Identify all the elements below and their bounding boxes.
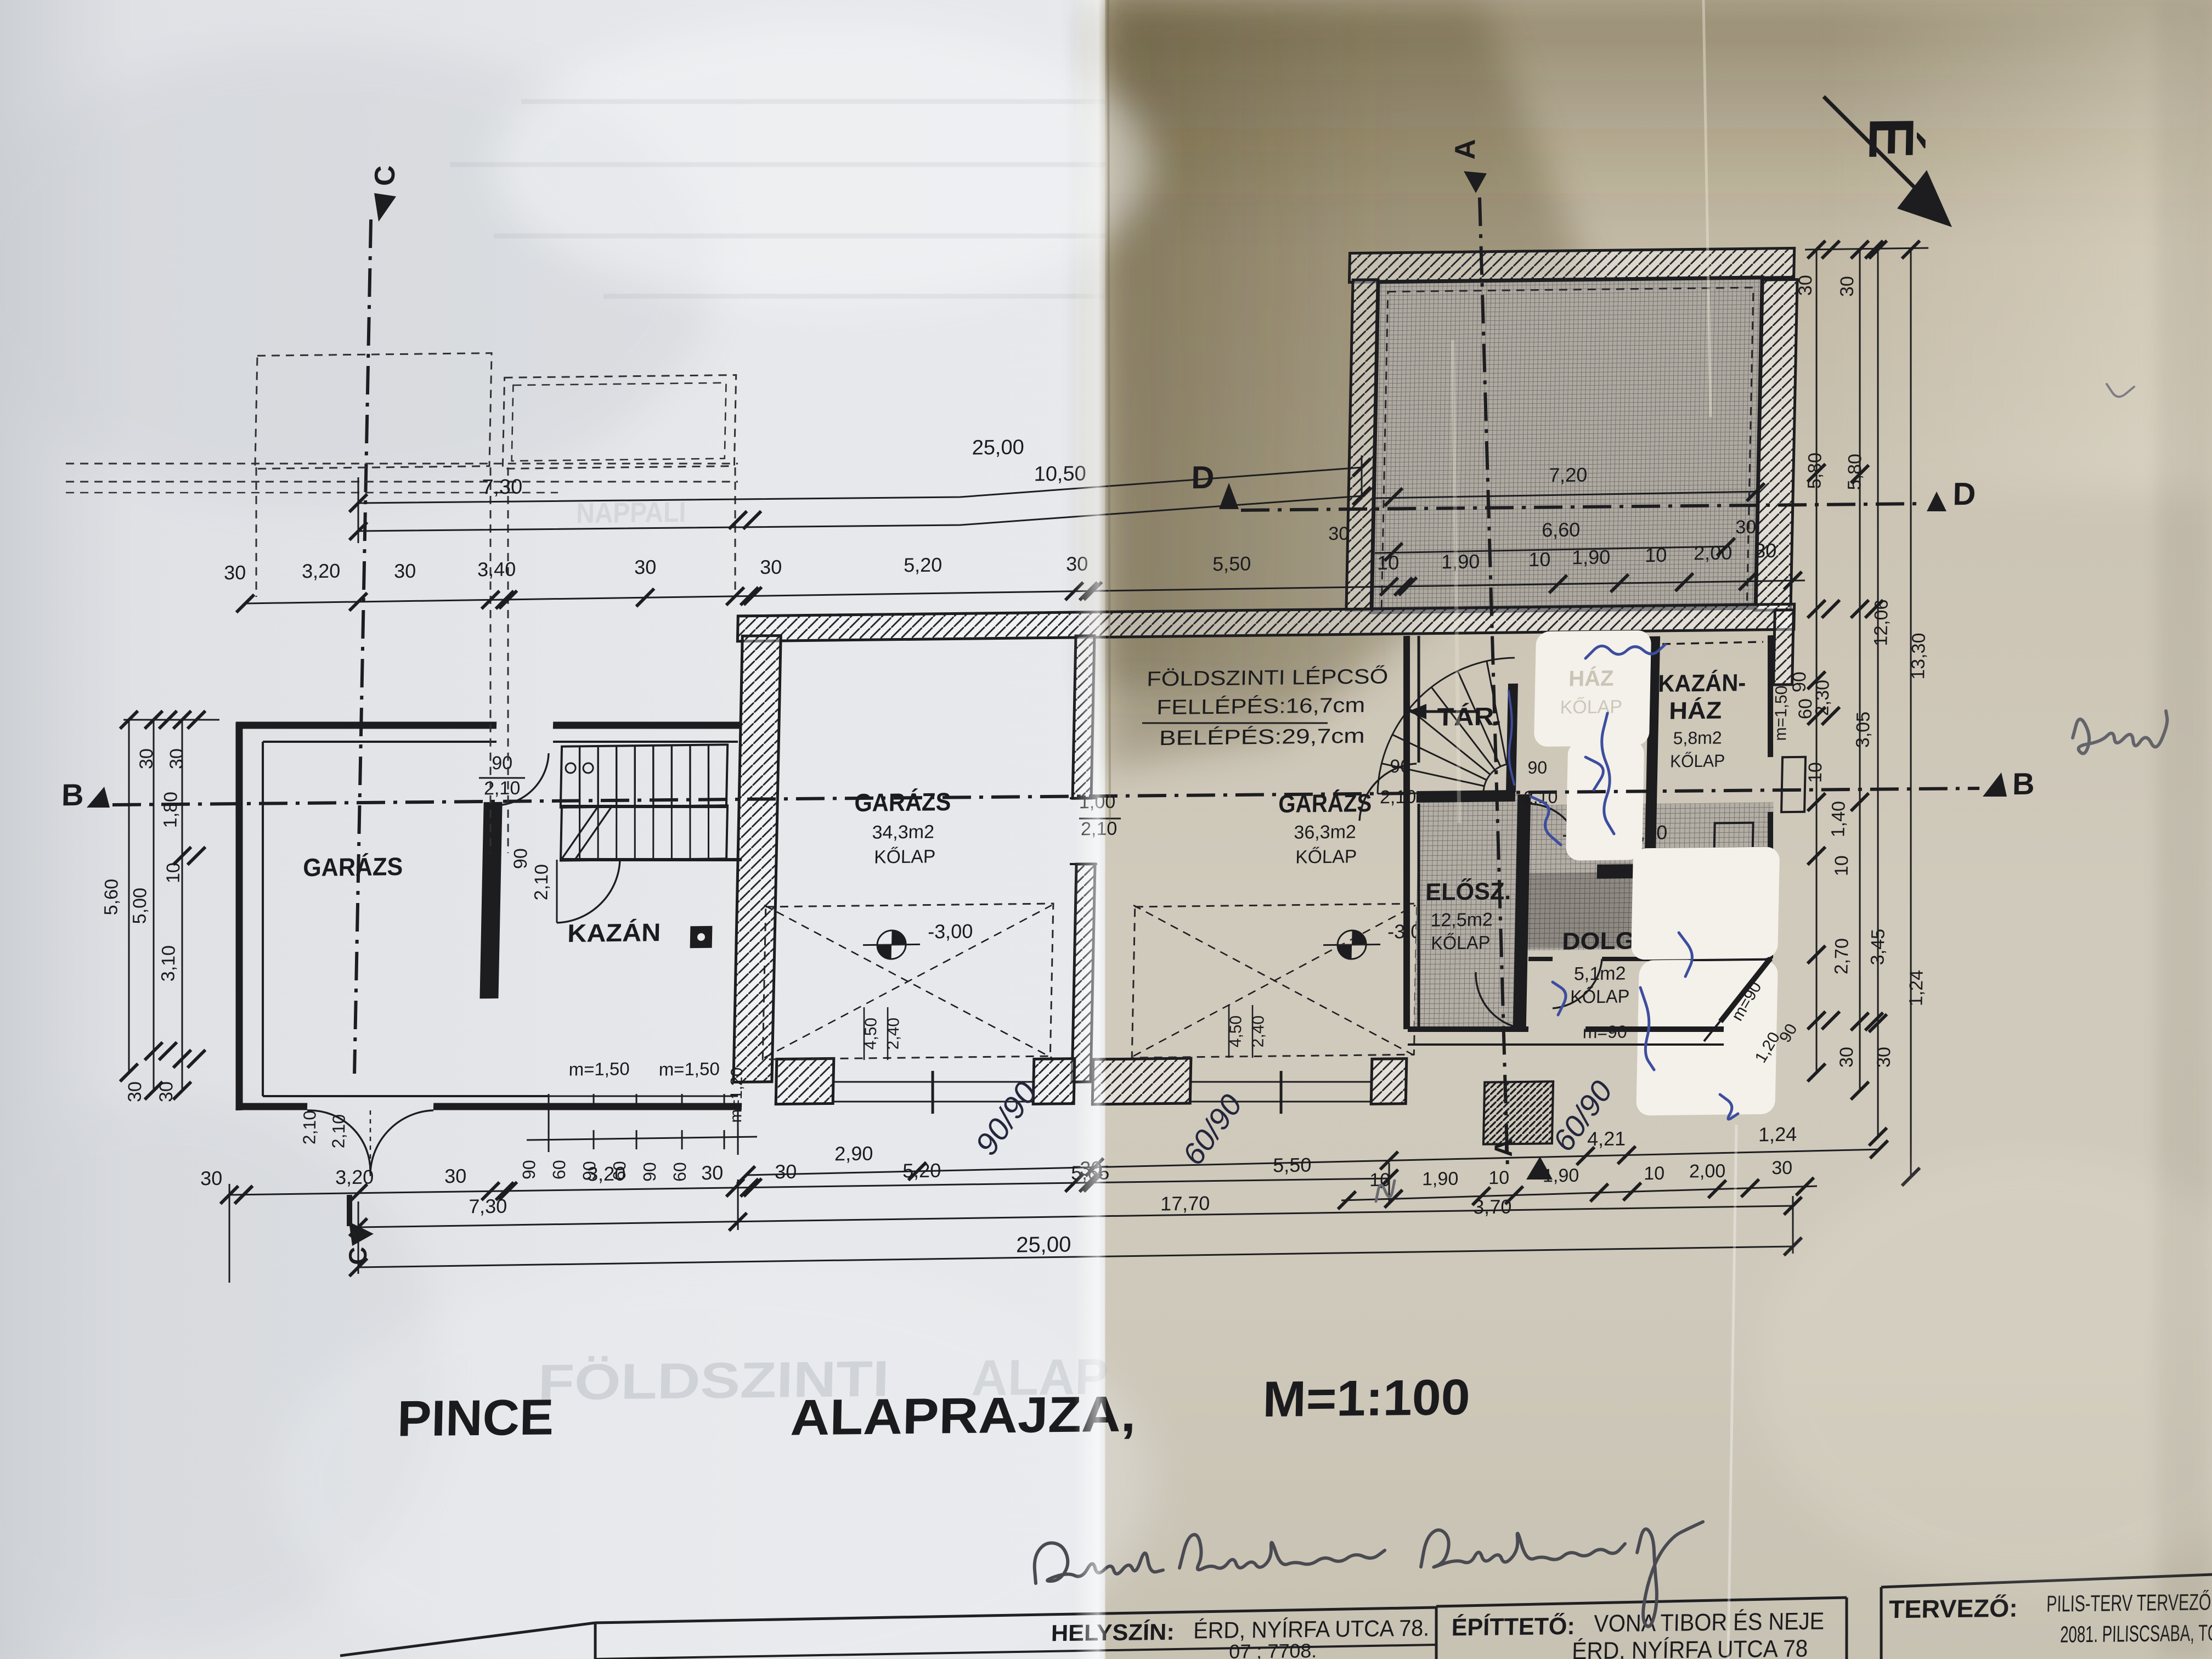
- svg-text:10: 10: [1645, 544, 1667, 566]
- svg-text:PINCE: PINCE: [397, 1389, 554, 1447]
- svg-text:KŐLAP: KŐLAP: [874, 846, 936, 867]
- svg-text:5,20: 5,20: [904, 554, 943, 577]
- svg-text:FÖLDSZINTI LÉPCSŐ: FÖLDSZINTI LÉPCSŐ: [1147, 664, 1389, 691]
- svg-text:7,30: 7,30: [482, 476, 523, 499]
- svg-text:12,5m2: 12,5m2: [1430, 909, 1493, 930]
- svg-text:30: 30: [1836, 1047, 1858, 1068]
- svg-text:2,00: 2,00: [1689, 1161, 1726, 1182]
- svg-text:1,90: 1,90: [1422, 1169, 1459, 1190]
- svg-text:C: C: [369, 165, 402, 186]
- svg-text:m=1,20: m=1,20: [727, 1068, 746, 1123]
- svg-text:36,3m2: 36,3m2: [1294, 821, 1356, 843]
- svg-text:12,06: 12,06: [1870, 599, 1892, 646]
- svg-text:34,3m2: 34,3m2: [872, 821, 934, 843]
- svg-text:30: 30: [775, 1160, 797, 1183]
- svg-text:3,20: 3,20: [335, 1166, 374, 1189]
- svg-text:13,30: 13,30: [1908, 633, 1929, 680]
- svg-text:D: D: [1953, 476, 1976, 512]
- svg-text:B: B: [61, 777, 84, 812]
- svg-text:KAZÁN: KAZÁN: [567, 918, 661, 947]
- svg-text:30: 30: [1771, 1158, 1793, 1178]
- svg-text:m=1,50: m=1,50: [1771, 685, 1791, 741]
- svg-text:1,90: 1,90: [1572, 546, 1611, 569]
- svg-text:3,05: 3,05: [1852, 712, 1874, 748]
- svg-text:A: A: [1489, 1138, 1518, 1157]
- svg-text:30: 30: [166, 748, 188, 769]
- svg-text:5,1m2: 5,1m2: [1574, 963, 1626, 984]
- svg-text:1,80: 1,80: [160, 792, 181, 828]
- svg-text:10: 10: [163, 862, 184, 883]
- svg-text:m=1,50: m=1,50: [658, 1058, 720, 1079]
- svg-text:30: 30: [136, 748, 157, 769]
- svg-text:10: 10: [1377, 551, 1400, 574]
- svg-text:GARÁZS: GARÁZS: [303, 852, 403, 882]
- svg-text:TÁR.: TÁR.: [1437, 702, 1502, 731]
- svg-text:2,10: 2,10: [328, 1114, 348, 1149]
- svg-text:90: 90: [1390, 756, 1411, 777]
- svg-text:60: 60: [549, 1160, 569, 1180]
- svg-text:B: B: [2012, 766, 2035, 801]
- svg-text:KAZÁN-: KAZÁN-: [1658, 669, 1746, 697]
- svg-text:3,10: 3,10: [157, 945, 179, 982]
- svg-text:1,24: 1,24: [1758, 1123, 1797, 1146]
- svg-text:30: 30: [1735, 517, 1757, 538]
- svg-text:2,70: 2,70: [1831, 938, 1852, 975]
- svg-text:30: 30: [200, 1167, 223, 1189]
- svg-text:KŐLAP: KŐLAP: [1431, 932, 1491, 953]
- svg-text:2,30: 2,30: [1812, 680, 1833, 716]
- svg-text:1,24: 1,24: [1905, 970, 1927, 1007]
- svg-text:5,50: 5,50: [1273, 1154, 1312, 1177]
- svg-text:HÁZ: HÁZ: [1568, 666, 1614, 691]
- svg-text:GARÁZS: GARÁZS: [854, 787, 951, 817]
- svg-text:5,60: 5,60: [100, 879, 122, 916]
- svg-text:30: 30: [1874, 1047, 1895, 1068]
- svg-text:3,45: 3,45: [1867, 929, 1888, 966]
- svg-text:10: 10: [1488, 1167, 1510, 1188]
- svg-text:M=1:100: M=1:100: [1262, 1369, 1471, 1427]
- svg-text:A: A: [1449, 139, 1482, 160]
- svg-text:30: 30: [444, 1165, 467, 1187]
- svg-text:m=1,50: m=1,50: [568, 1058, 630, 1079]
- svg-text:30: 30: [634, 556, 657, 578]
- svg-text:-3,00: -3,00: [928, 920, 973, 943]
- svg-text:10: 10: [1805, 762, 1826, 783]
- svg-text:FÖLDSZINTI: FÖLDSZINTI: [538, 1351, 890, 1410]
- svg-text:KŐLAP: KŐLAP: [1570, 986, 1630, 1007]
- svg-text:1,40: 1,40: [1827, 801, 1849, 838]
- svg-text:90: 90: [1527, 758, 1547, 777]
- svg-text:5,50: 5,50: [1212, 552, 1251, 575]
- svg-text:3,40: 3,40: [477, 558, 516, 581]
- svg-text:10: 10: [1528, 548, 1551, 571]
- svg-text:10: 10: [1644, 1163, 1665, 1184]
- svg-text:BELÉPÉS:29,7cm: BELÉPÉS:29,7cm: [1159, 724, 1365, 750]
- svg-text:90: 90: [1789, 672, 1810, 692]
- svg-text:30: 30: [701, 1161, 724, 1184]
- svg-text:10: 10: [1831, 855, 1853, 876]
- svg-text:30: 30: [760, 556, 782, 578]
- svg-text:2,90: 2,90: [834, 1142, 873, 1165]
- svg-text:90: 90: [492, 753, 513, 774]
- svg-text:TERVEZŐ:: TERVEZŐ:: [1888, 1594, 2018, 1624]
- svg-text:7,20: 7,20: [1549, 464, 1588, 487]
- svg-text:6,60: 6,60: [1542, 518, 1581, 541]
- svg-text:ÉPÍTTETŐ:: ÉPÍTTETŐ:: [1451, 1612, 1575, 1641]
- svg-text:2,40: 2,40: [1249, 1015, 1267, 1048]
- svg-text:KŐLAP: KŐLAP: [1295, 846, 1357, 867]
- svg-text:KŐLAP: KŐLAP: [1670, 751, 1725, 771]
- svg-text:3,20: 3,20: [587, 1163, 626, 1186]
- svg-text:2,00: 2,00: [1694, 541, 1733, 565]
- svg-text:5,8m2: 5,8m2: [1673, 727, 1722, 748]
- svg-text:ÉRD, NYÍRFA UTCA 78: ÉRD, NYÍRFA UTCA 78: [1572, 1635, 1808, 1659]
- svg-text:17,70: 17,70: [1160, 1192, 1210, 1215]
- svg-text:30: 30: [224, 561, 246, 584]
- svg-text:2,40: 2,40: [884, 1018, 902, 1050]
- svg-text:4,21: 4,21: [1587, 1127, 1626, 1150]
- svg-text:30: 30: [1795, 275, 1816, 296]
- svg-text:5,80: 5,80: [1844, 454, 1865, 490]
- svg-text:90: 90: [640, 1162, 660, 1182]
- svg-text:D: D: [1191, 460, 1215, 495]
- svg-text:HELYSZÍN:: HELYSZÍN:: [1051, 1619, 1175, 1646]
- svg-text:25,00: 25,00: [972, 436, 1024, 459]
- svg-text:30: 30: [1754, 539, 1777, 562]
- svg-text:DOLG.: DOLG.: [1562, 927, 1643, 955]
- svg-text:VONA TIBOR ÉS NEJE: VONA TIBOR ÉS NEJE: [1594, 1608, 1825, 1638]
- svg-text:FELLÉPÉS:16,7cm: FELLÉPÉS:16,7cm: [1156, 693, 1365, 719]
- svg-text:07 ; 7708.: 07 ; 7708.: [1229, 1639, 1317, 1659]
- svg-text:5,80: 5,80: [1804, 453, 1825, 489]
- svg-text:5,00: 5,00: [129, 888, 150, 924]
- svg-text:2,10: 2,10: [299, 1110, 319, 1145]
- svg-text:2,10: 2,10: [484, 778, 521, 799]
- svg-text:30: 30: [1837, 276, 1858, 297]
- svg-text:30: 30: [156, 1081, 177, 1102]
- svg-text:1,90: 1,90: [1543, 1165, 1579, 1187]
- svg-text:1,90: 1,90: [1441, 550, 1480, 573]
- svg-text:25,00: 25,00: [1016, 1232, 1071, 1257]
- svg-text:30: 30: [394, 560, 416, 582]
- svg-text:2,10: 2,10: [531, 864, 552, 901]
- svg-text:2,10: 2,10: [1380, 787, 1417, 808]
- svg-text:30: 30: [125, 1081, 146, 1102]
- svg-text:60: 60: [670, 1162, 690, 1182]
- svg-text:HÁZ: HÁZ: [1669, 697, 1722, 725]
- svg-text:30: 30: [1328, 523, 1350, 544]
- svg-text:KŐLAP: KŐLAP: [1560, 696, 1622, 718]
- svg-text:5,20: 5,20: [902, 1159, 941, 1182]
- svg-text:2,10: 2,10: [1523, 787, 1558, 808]
- svg-text:3,20: 3,20: [302, 560, 341, 583]
- svg-text:90: 90: [519, 1160, 539, 1180]
- svg-text:90: 90: [510, 848, 532, 869]
- svg-text:NAPPALI: NAPPALI: [576, 496, 686, 529]
- svg-text:7,30: 7,30: [469, 1195, 507, 1218]
